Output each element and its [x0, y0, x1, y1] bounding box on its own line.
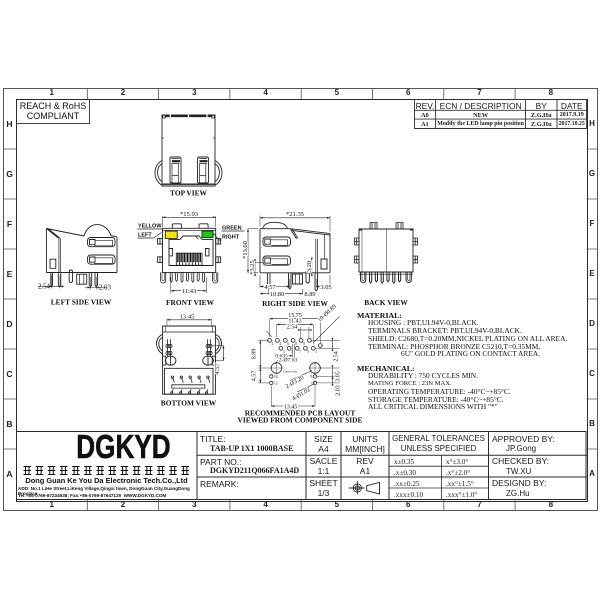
- svg-text:LEFT: LEFT: [138, 233, 152, 239]
- svg-text:2: 2: [272, 342, 274, 346]
- svg-text:BOTTOM VIEW: BOTTOM VIEW: [161, 399, 217, 408]
- svg-text:2.03: 2.03: [336, 385, 342, 396]
- svg-text:8.89: 8.89: [252, 349, 258, 360]
- svg-text:13.45: 13.45: [180, 313, 196, 320]
- svg-text:3.05: 3.05: [320, 284, 331, 291]
- svg-text:14: 14: [274, 375, 278, 379]
- svg-text:2.54: 2.54: [38, 284, 50, 291]
- svg-text:1: 1: [315, 350, 317, 354]
- svg-text:2-Ø7.63: 2-Ø7.63: [279, 358, 298, 364]
- svg-text:2-Ø3.20: 2-Ø3.20: [285, 375, 305, 390]
- svg-text:*15.93: *15.93: [180, 211, 199, 218]
- svg-text:9: 9: [311, 375, 313, 379]
- svg-text:9: 9: [307, 350, 309, 354]
- svg-text:FRONT VIEW: FRONT VIEW: [166, 298, 215, 307]
- svg-text:8: 8: [295, 342, 297, 346]
- svg-text:4: 4: [279, 342, 281, 346]
- svg-text:5: 5: [291, 350, 293, 354]
- svg-text:4.57: 4.57: [252, 371, 258, 382]
- svg-text:11.43: 11.43: [182, 288, 197, 295]
- svg-text:4-Ø1.02: 4-Ø1.02: [291, 387, 311, 402]
- svg-text:YELLOW: YELLOW: [138, 224, 162, 230]
- svg-text:7: 7: [299, 350, 301, 354]
- svg-text:*21.35: *21.35: [286, 211, 305, 218]
- svg-text:VIEWED FROM COMPONENT SIDE: VIEWED FROM COMPONENT SIDE: [238, 415, 363, 424]
- svg-text:13: 13: [274, 382, 278, 386]
- svg-text:3.05: 3.05: [336, 371, 342, 382]
- svg-text:GREEN: GREEN: [222, 226, 242, 232]
- svg-text:Center line: Center line: [283, 370, 298, 374]
- svg-text:TOP VIEW: TOP VIEW: [170, 189, 208, 198]
- svg-text:4.57: 4.57: [214, 363, 221, 375]
- svg-text:10.80: 10.80: [270, 291, 284, 298]
- svg-text:2.54: 2.54: [334, 351, 340, 362]
- svg-text:*3.25: *3.25: [249, 260, 256, 274]
- svg-text:8.89: 8.89: [304, 291, 315, 298]
- svg-text:2.54: 2.54: [287, 325, 298, 331]
- svg-text:RIGHT: RIGHT: [222, 235, 240, 241]
- svg-text:6: 6: [287, 342, 289, 346]
- svg-text:10-Ø0.89: 10-Ø0.89: [317, 304, 338, 324]
- svg-text:*13.60: *13.60: [242, 241, 249, 259]
- svg-text:BACK VIEW: BACK VIEW: [364, 298, 408, 307]
- svg-text:LEFT SIDE VIEW: LEFT SIDE VIEW: [51, 298, 112, 307]
- svg-text:4.57: 4.57: [264, 284, 276, 291]
- svg-text:0: 0: [303, 342, 305, 346]
- svg-text:3.20: 3.20: [306, 261, 313, 272]
